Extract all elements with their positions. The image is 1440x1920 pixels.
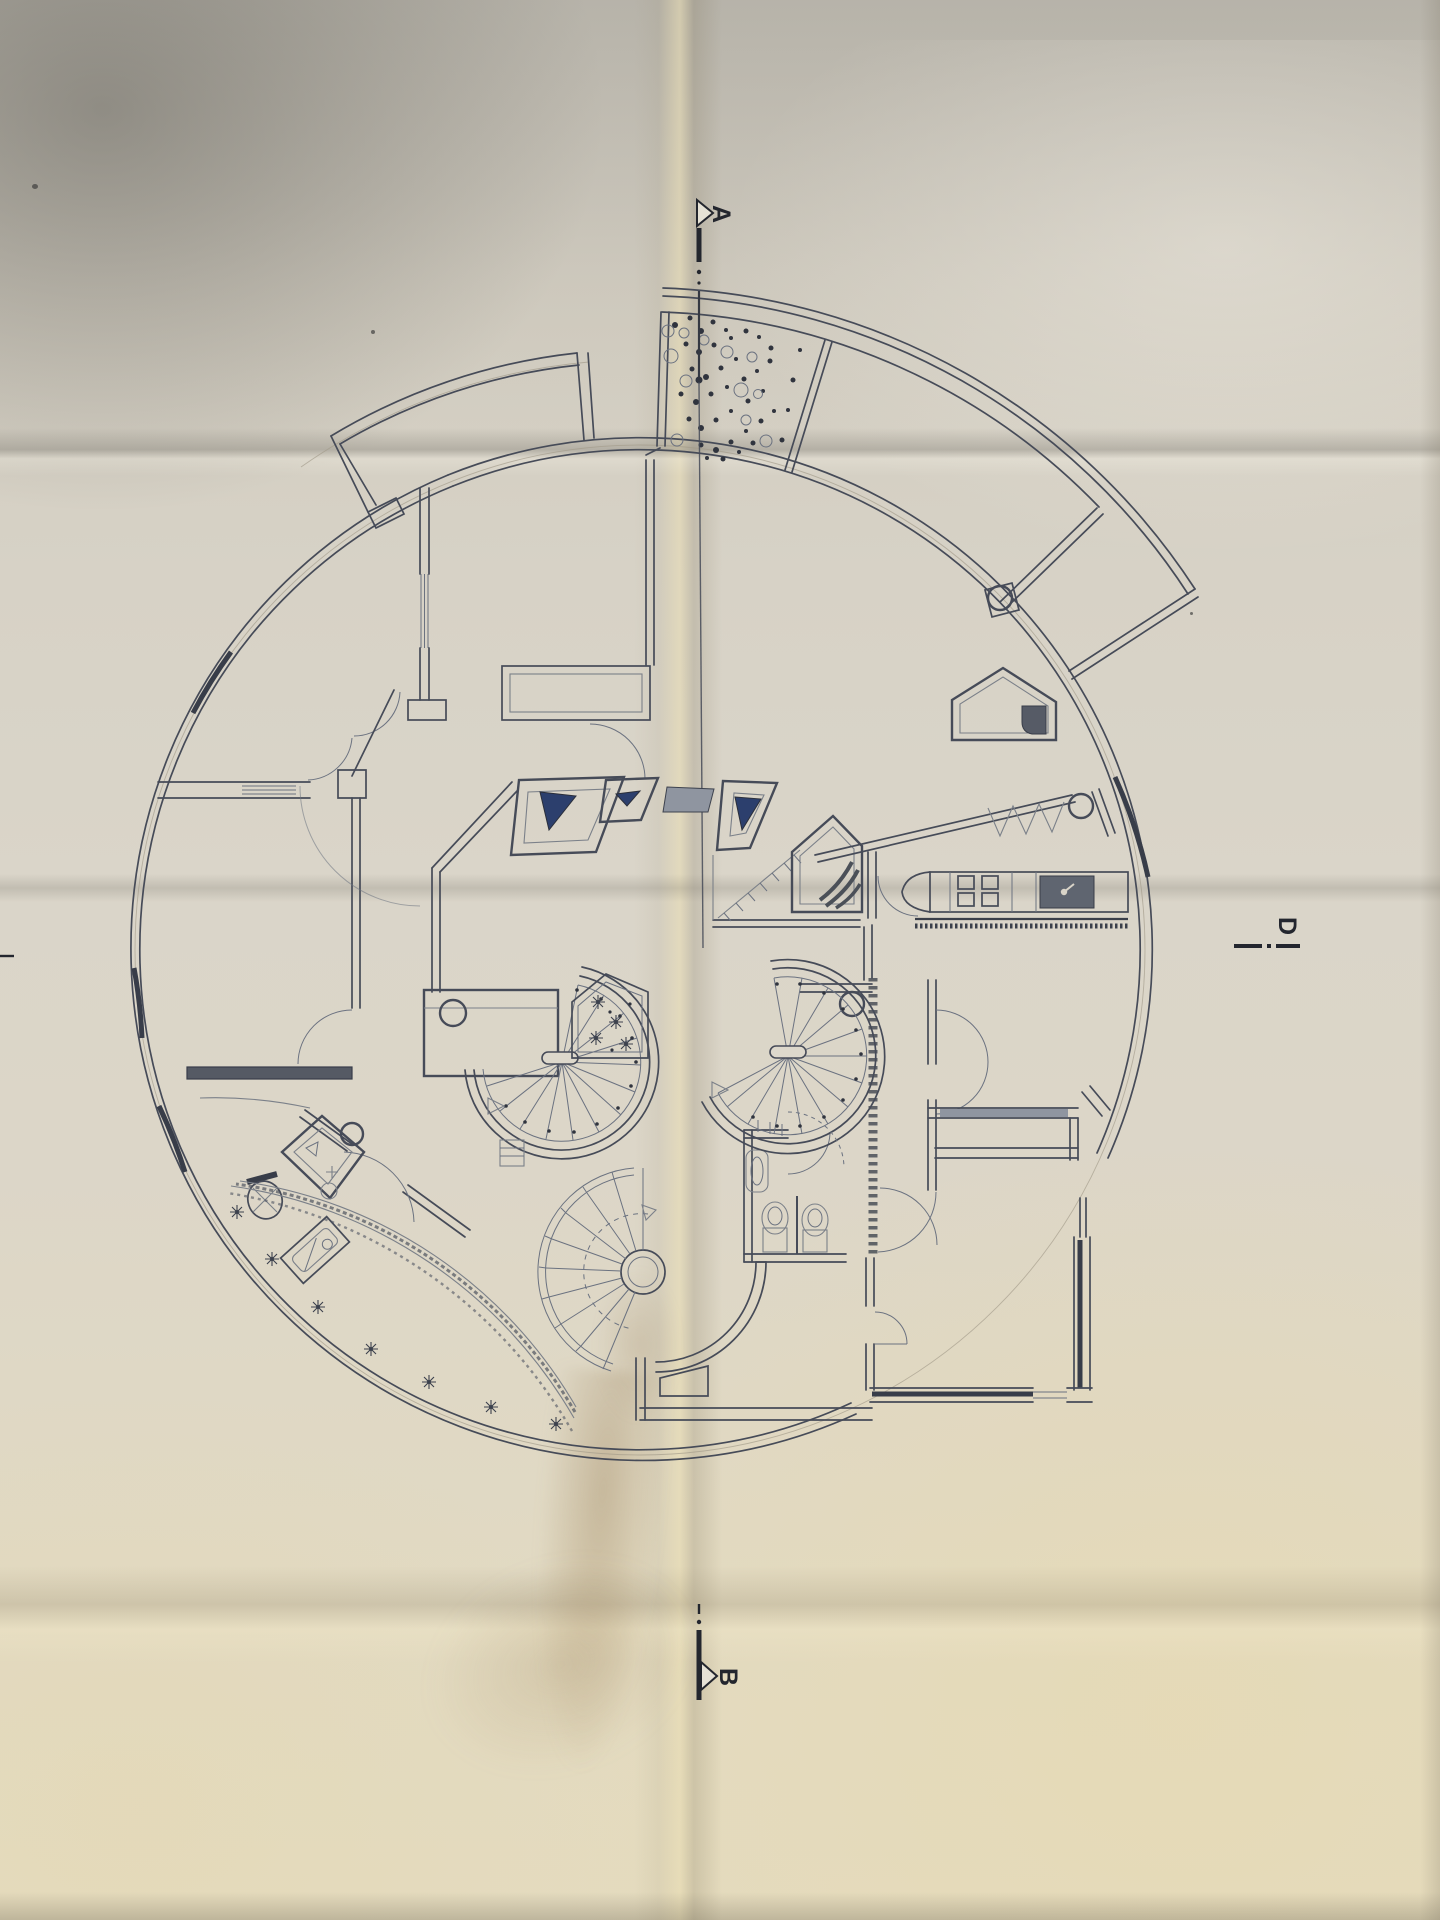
- skylight-glass: [540, 792, 576, 830]
- section-label-b: B: [714, 1668, 742, 1686]
- section-marker-d: D: [1234, 917, 1301, 946]
- washbasin: [746, 1150, 768, 1192]
- construction-circle: [135, 362, 1145, 1455]
- section-label-a: A: [707, 205, 735, 223]
- bathtub: [281, 1217, 350, 1284]
- floor-plan-drawing: A B D: [0, 0, 1440, 1920]
- left-rooms: [187, 798, 360, 1108]
- hall-walls: [300, 782, 518, 992]
- roof-garden-terrace: [657, 288, 1198, 679]
- steps-ticks: [718, 850, 801, 921]
- skylight-glass: [735, 797, 761, 830]
- annex-room: [866, 1188, 1092, 1402]
- column: [440, 1000, 466, 1026]
- spiral-staircase-left: [424, 967, 659, 1166]
- balcony-parapet: [331, 353, 594, 528]
- planting-strip: [228, 1181, 576, 1431]
- toilet: [762, 1202, 788, 1252]
- column: [1069, 794, 1093, 818]
- section-marker-a: A: [697, 200, 735, 226]
- section-label-d: D: [1273, 917, 1301, 935]
- spiral-staircase-right: [702, 960, 885, 1168]
- photographed-floor-plan-sheet: A B D: [0, 0, 1440, 1920]
- right-rooms: [878, 980, 1110, 1252]
- spiral-staircase-bottom: [538, 1168, 665, 1371]
- window-band: [187, 1067, 352, 1079]
- section-marker-b: B: [697, 1604, 742, 1700]
- skylights: [511, 668, 1056, 980]
- pentagon-niche: [952, 668, 1056, 740]
- hearth: [792, 816, 862, 912]
- skylight-glass: [616, 791, 640, 806]
- bottom-walls: [636, 1262, 872, 1420]
- bathroom: [243, 1110, 470, 1283]
- window-band: [940, 1109, 1068, 1117]
- direction-arrow: [642, 1205, 656, 1220]
- toilet: [243, 1174, 287, 1223]
- planting-hatch: [662, 316, 802, 462]
- toilet: [802, 1204, 828, 1252]
- skylight-gray-panel: [663, 787, 714, 812]
